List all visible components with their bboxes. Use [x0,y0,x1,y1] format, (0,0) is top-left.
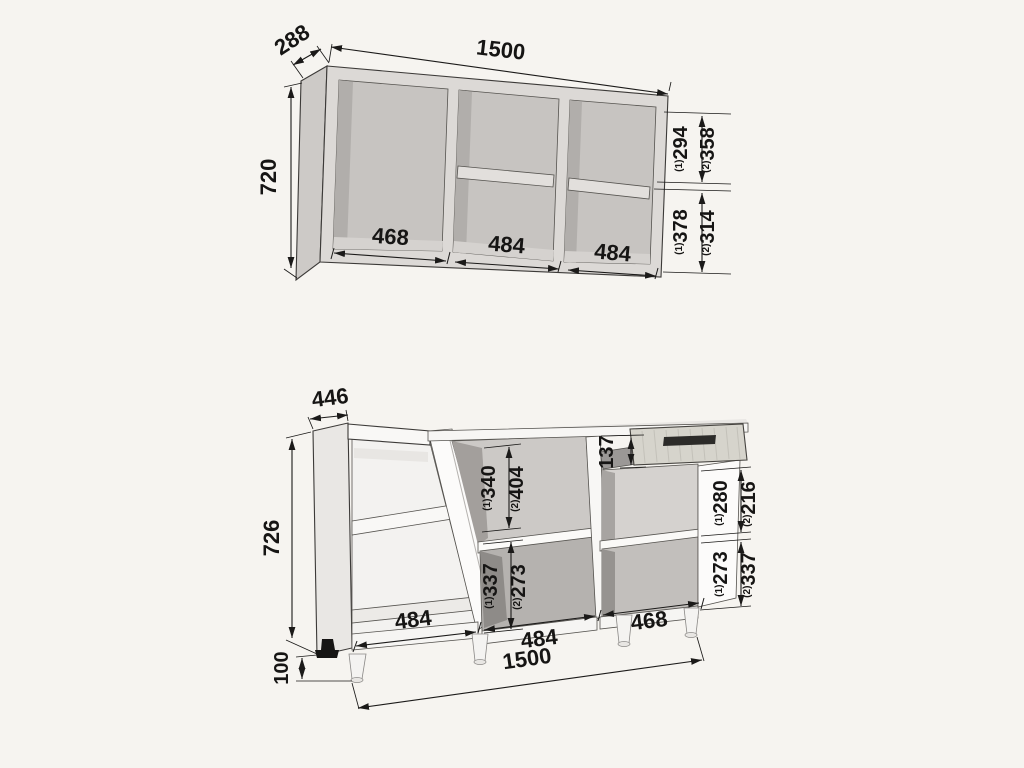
upper-section2-width: 484 [487,231,526,259]
cabinet-dimension-diagram: 288 1500 720 468 484 484 (1)294 (2)358 [0,0,1024,768]
base-height-label: 726 [259,520,284,557]
upper-height-label: 720 [256,159,281,196]
base-right-lower-compartment [602,537,698,618]
base-left-panel [313,423,352,656]
diagram-canvas: 288 1500 720 468 484 484 (1)294 (2)358 [0,0,1024,768]
upper-section1-width: 468 [371,223,409,251]
cabinet-leg [472,634,488,661]
cabinet-leg [684,608,699,634]
drawer-height-label: 137 [596,435,618,468]
compartment-shadow [602,549,615,618]
upper-section3-width: 484 [593,238,633,266]
leg-height-label: 100 [271,651,293,684]
base-section3-width: 468 [629,606,668,635]
compartment-shadow [602,470,615,543]
base-section1-width: 484 [393,605,433,634]
base-depth-label: 446 [310,383,349,412]
